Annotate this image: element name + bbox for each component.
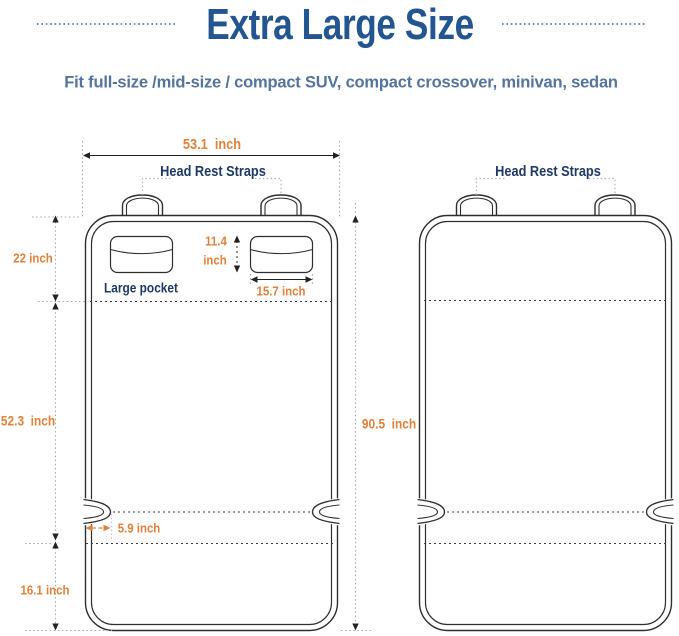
seat-length-label: 52.3 inch: [1, 414, 55, 428]
headrest-leader-left: [143, 179, 282, 196]
headrest-straps-label-left: Head Rest Straps: [160, 165, 266, 180]
right-pocket: [251, 237, 313, 273]
right-cover-fold-lines: [424, 301, 667, 544]
pocket-height-unit-label: inch: [203, 254, 227, 267]
backrest-height-label: 22 inch: [13, 252, 52, 265]
diagram-linework: [0, 0, 679, 636]
dimension-pocket-height: [234, 236, 240, 273]
left-cover-fold-lines: [86, 302, 333, 544]
dimension-total-length: [352, 203, 358, 631]
dimension-left-chain: [25, 216, 372, 631]
left-pocket: [111, 237, 173, 273]
page-title: Extra Large Size: [206, 3, 474, 47]
total-length-label: 90.5 inch: [362, 417, 416, 431]
size-chart-infographic: Extra Large Size Fit full-size /mid-size…: [0, 0, 679, 636]
pocket-width-label: 15.7 inch: [257, 285, 306, 298]
page-subtitle: Fit full-size /mid-size / compact SUV, c…: [64, 74, 618, 91]
headrest-straps-label-right: Head Rest Straps: [495, 165, 601, 180]
notch-depth-label: 5.9 inch: [118, 522, 161, 535]
large-pocket-label: Large pocket: [104, 281, 178, 295]
pocket-height-value-label: 11.4: [205, 235, 227, 248]
headrest-leader-right: [477, 179, 616, 196]
front-flap-label: 16.1 inch: [21, 584, 70, 597]
right-cover-outline: [418, 195, 674, 631]
width-dimension-label: 53.1 inch: [183, 138, 241, 153]
